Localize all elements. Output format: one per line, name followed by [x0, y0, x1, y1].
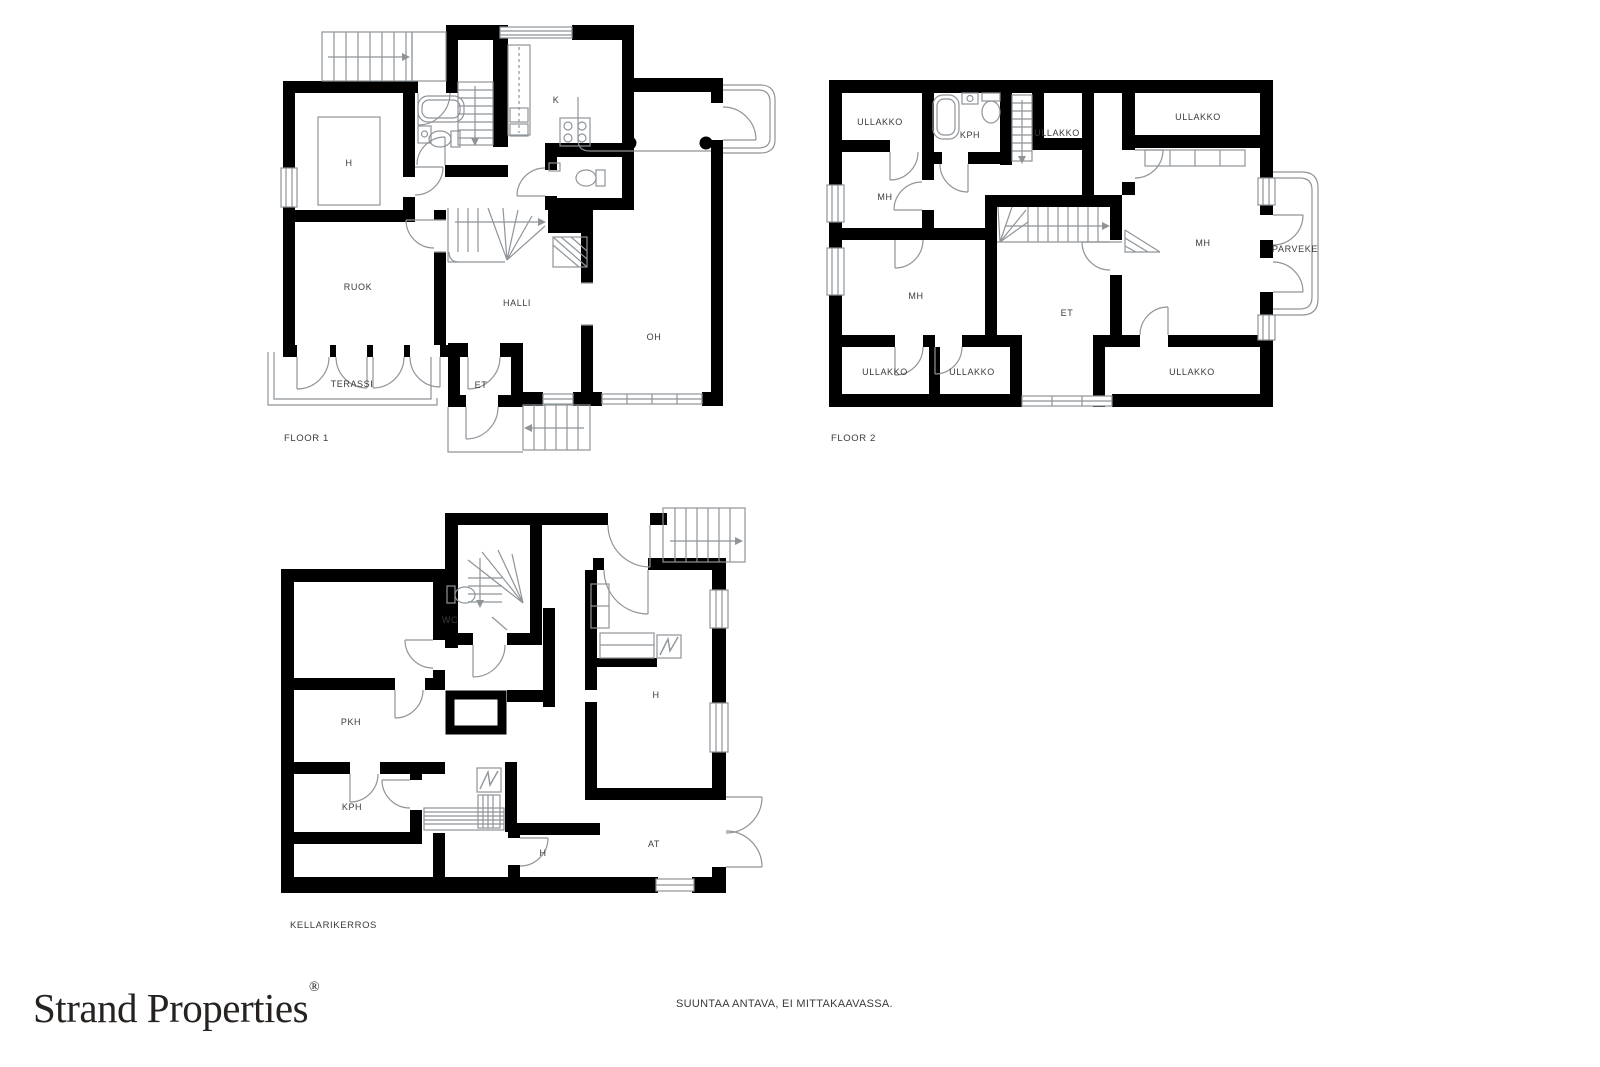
toilet-icon: [982, 93, 1000, 123]
kellarikerros-plan: [281, 508, 762, 893]
floor2-room-label-mh-5: MH: [1195, 238, 1210, 248]
winder-stairs-icon: [448, 208, 546, 262]
kellarikerros-room-label-at-5: AT: [648, 839, 660, 849]
sauna-stove-icon: [477, 768, 501, 792]
porch-outline: [578, 85, 775, 153]
bathtub-icon: [933, 95, 959, 139]
floorplan-sheet: FLOOR 1HKRUOKHALLIOHTERASSIETFLOOR 2ULLA…: [0, 0, 1600, 1067]
bathtub-icon: [418, 96, 464, 122]
closet-icon: [450, 695, 502, 730]
winder-stairs-icon: [468, 550, 523, 630]
floor1-room-label-oh-4: OH: [647, 332, 662, 342]
caption-floor2: FLOOR 2: [831, 433, 876, 444]
floor1-room-label-terassi-5: TERASSI: [331, 379, 374, 389]
stairs-icon: [1012, 95, 1032, 164]
sink-icon: [962, 93, 978, 104]
floor2-room-label-mh-7: MH: [908, 291, 923, 301]
kellarikerros-room-label-wc-0: WC: [442, 615, 458, 625]
porch-columns: [624, 137, 713, 150]
exterior-stairs-icon: [523, 405, 590, 450]
disclaimer-text: SUUNTAA ANTAVA, EI MITTAKAAVASSA.: [676, 998, 893, 1010]
registered-trademark-icon: ®: [309, 980, 319, 995]
brand-name: Strand Properties: [33, 985, 308, 1031]
stair-hatch: [1125, 230, 1160, 252]
kellarikerros-room-label-kph-3: KPH: [342, 802, 362, 812]
floor1-room-label-k-1: K: [553, 95, 560, 105]
floor2-room-label-ullakko-9: ULLAKKO: [862, 367, 908, 377]
floor2-room-label-ullakko-10: ULLAKKO: [949, 367, 995, 377]
sauna-bench-icon: [424, 795, 504, 830]
floor2-room-label-kph-1: KPH: [960, 130, 980, 140]
exterior-stairs-icon: [663, 508, 745, 562]
floorplan-drawing: [0, 0, 1600, 1067]
floor1-room-label-ruok-2: RUOK: [344, 282, 372, 292]
caption-kellarikerros: KELLARIKERROS: [290, 920, 377, 931]
main-stairs-icon: [997, 207, 1122, 242]
floor2-room-label-ullakko-3: ULLAKKO: [1175, 112, 1221, 122]
stairs-icon: [458, 82, 493, 146]
caption-floor1: FLOOR 1: [284, 433, 329, 444]
kellarikerros-room-label-pkh-2: PKH: [341, 717, 361, 727]
floor2-room-label-ullakko-2: ULLAKKO: [1034, 128, 1080, 138]
bench-icon: [600, 633, 654, 658]
floor1-room-label-halli-3: HALLI: [503, 298, 531, 308]
garage-door-icon: [726, 797, 762, 867]
stove-icon: [560, 118, 590, 146]
floor2-room-label-mh-4: MH: [877, 192, 892, 202]
floor2-room-label-et-8: ET: [1061, 308, 1074, 318]
floor1-room-label-h-0: H: [345, 158, 352, 168]
floor2-room-label-ullakko-11: ULLAKKO: [1169, 367, 1215, 377]
kellarikerros-room-label-h-1: H: [652, 690, 659, 700]
kitchen-counter-icon: [508, 45, 530, 136]
sauna-stove-icon: [657, 635, 681, 658]
floor1-room-label-et-6: ET: [475, 380, 488, 390]
floor2-room-label-parveke-6: PARVEKE: [1272, 244, 1318, 254]
kellarikerros-room-label-h-4: H: [539, 848, 546, 858]
toilet-icon: [549, 163, 605, 186]
floor2-room-label-ullakko-0: ULLAKKO: [857, 117, 903, 127]
exterior-stairs-icon: [322, 32, 446, 81]
brand-logo: Strand Properties®: [33, 984, 318, 1032]
